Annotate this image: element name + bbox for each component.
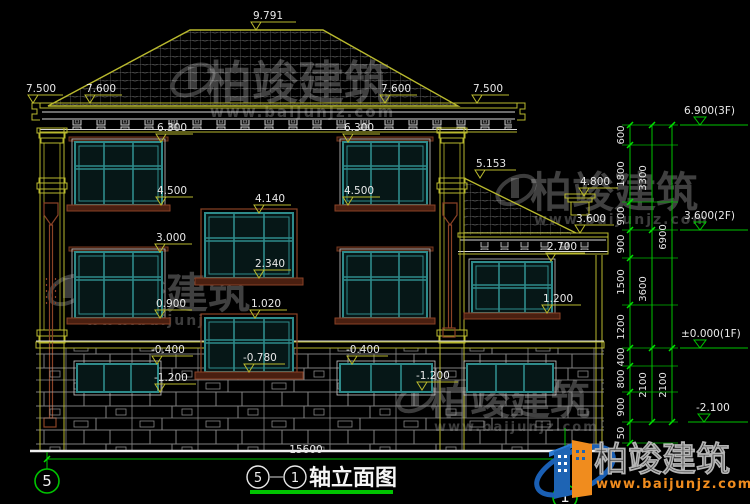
- axis-bubble-5: 5: [35, 469, 59, 493]
- svg-text:3300: 3300: [638, 165, 649, 190]
- svg-text:7.600: 7.600: [86, 83, 116, 95]
- svg-text:1500: 1500: [616, 269, 627, 294]
- svg-text:-1.200: -1.200: [154, 372, 188, 384]
- svg-text:3.600(2F): 3.600(2F): [684, 210, 735, 222]
- level-1f: ±0.000(1F): [680, 328, 748, 348]
- window-1f-right: [335, 247, 435, 324]
- svg-text:50: 50: [616, 427, 627, 440]
- annex-eave: [458, 233, 608, 254]
- cad-elevation-drawing: 柏竣建筑 www.baijunjz.com 柏竣建筑 www.baijunjz.…: [0, 0, 750, 504]
- svg-text:1: 1: [291, 471, 299, 486]
- svg-text:900: 900: [616, 206, 627, 225]
- svg-text:800: 800: [616, 369, 627, 388]
- window-1f-left: [67, 247, 170, 324]
- window-basement-right: [464, 361, 556, 395]
- svg-text:-0.780: -0.780: [243, 352, 277, 364]
- logo-building-blue: [554, 446, 570, 499]
- logo-name: 柏竣建筑: [594, 440, 730, 480]
- svg-text:-1.200: -1.200: [416, 370, 450, 382]
- level-3f: 6.900(3F): [680, 105, 748, 125]
- window-stair-upper: [195, 209, 303, 285]
- svg-text:5.153: 5.153: [476, 158, 506, 170]
- logo-building-orange: [572, 440, 592, 498]
- svg-text:6.900(3F): 6.900(3F): [684, 105, 735, 117]
- svg-text:-2.100: -2.100: [696, 402, 730, 414]
- svg-text:-0.400: -0.400: [151, 344, 185, 356]
- baijun-logo: 柏竣建筑 www.baijunjz.com: [530, 437, 750, 504]
- svg-text:4.140: 4.140: [255, 193, 285, 205]
- svg-text:3600: 3600: [638, 276, 649, 301]
- right-downspout: [443, 203, 457, 337]
- eave-end-left: [32, 103, 40, 120]
- svg-text:3.000: 3.000: [156, 232, 186, 244]
- svg-text:900: 900: [616, 234, 627, 253]
- eave-end-right: [517, 103, 525, 120]
- svg-text:6.300: 6.300: [344, 122, 374, 134]
- marker-eave-right-outer: 7.500: [472, 83, 509, 103]
- svg-text:-0.400: -0.400: [346, 344, 380, 356]
- svg-text:7.500: 7.500: [473, 83, 503, 95]
- svg-text:9.791: 9.791: [253, 10, 283, 22]
- svg-text:±0.000(1F): ±0.000(1F): [681, 328, 741, 340]
- svg-text:3.600: 3.600: [576, 213, 606, 225]
- svg-text:2100: 2100: [638, 372, 649, 397]
- window-2f-left: [67, 137, 170, 211]
- marker-eave-left-outer: 7.500: [26, 83, 63, 103]
- svg-text:1800: 1800: [616, 161, 627, 186]
- window-basement-left: [74, 361, 161, 395]
- svg-text:7.600: 7.600: [381, 83, 411, 95]
- svg-text:900: 900: [616, 397, 627, 416]
- window-stair-lower: [195, 314, 303, 379]
- logo-url: www.baijunjz.com: [596, 477, 750, 492]
- svg-text:4.800: 4.800: [580, 176, 610, 188]
- basement: [30, 341, 615, 451]
- marker-peak: 9.791: [251, 10, 296, 30]
- marker-stair-upper-top: 4.140: [254, 193, 291, 213]
- svg-text:1200: 1200: [616, 314, 627, 339]
- svg-text:6900: 6900: [658, 224, 669, 249]
- total-width-label: 15600: [289, 444, 322, 456]
- annex-eave-end: [602, 233, 608, 254]
- svg-text:1.200: 1.200: [543, 293, 573, 305]
- svg-text:5: 5: [254, 471, 262, 486]
- drawing-title: 5 1 轴立面图: [247, 465, 397, 494]
- level-basement: -2.100: [688, 402, 748, 422]
- svg-text:600: 600: [616, 125, 627, 144]
- svg-text:2100: 2100: [658, 372, 669, 397]
- svg-text:2.700: 2.700: [547, 241, 577, 253]
- window-2f-right: [335, 137, 435, 211]
- svg-text:5: 5: [42, 472, 52, 490]
- svg-text:6.300: 6.300: [157, 122, 187, 134]
- watermark-text: 柏竣建筑: [530, 168, 698, 217]
- svg-text:4.500: 4.500: [157, 185, 187, 197]
- svg-text:7.500: 7.500: [26, 83, 56, 95]
- title-underline: [250, 490, 393, 494]
- svg-text:4.500: 4.500: [344, 185, 374, 197]
- svg-text:1.020: 1.020: [251, 298, 281, 310]
- title-text: 轴立面图: [309, 465, 397, 491]
- svg-text:400: 400: [616, 347, 627, 366]
- marker-annex-ridge: 5.153: [475, 158, 516, 178]
- drawing-canvas: 柏竣建筑 www.baijunjz.com 柏竣建筑 www.baijunjz.…: [0, 0, 750, 504]
- svg-text:0.900: 0.900: [156, 298, 186, 310]
- svg-text:2.340: 2.340: [255, 258, 285, 270]
